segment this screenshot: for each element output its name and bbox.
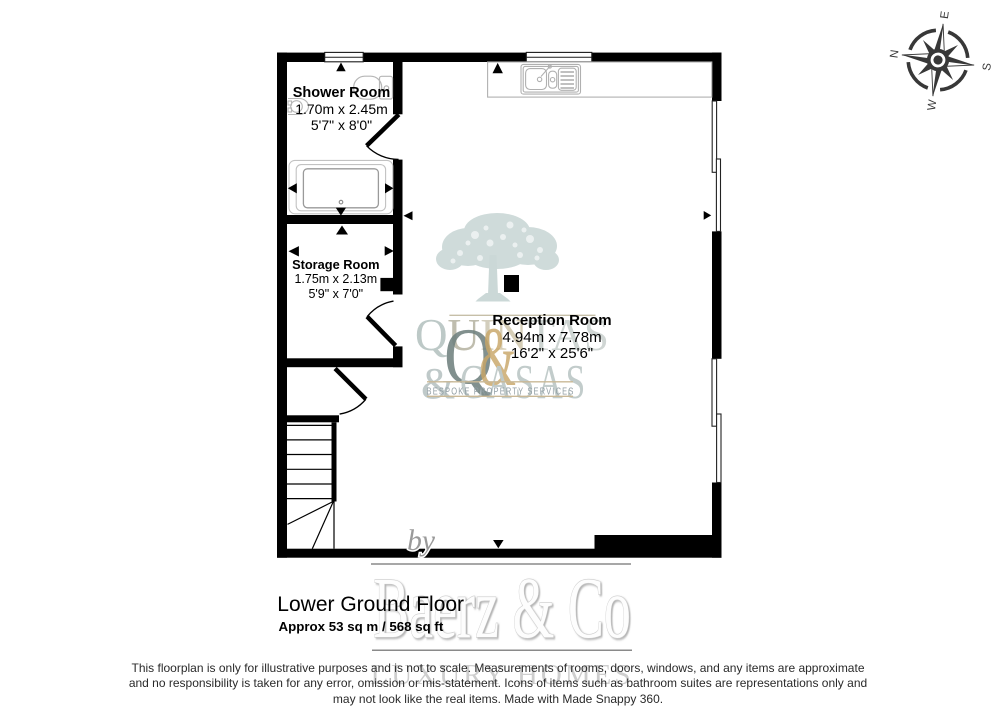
svg-text:by: by [407,525,436,557]
